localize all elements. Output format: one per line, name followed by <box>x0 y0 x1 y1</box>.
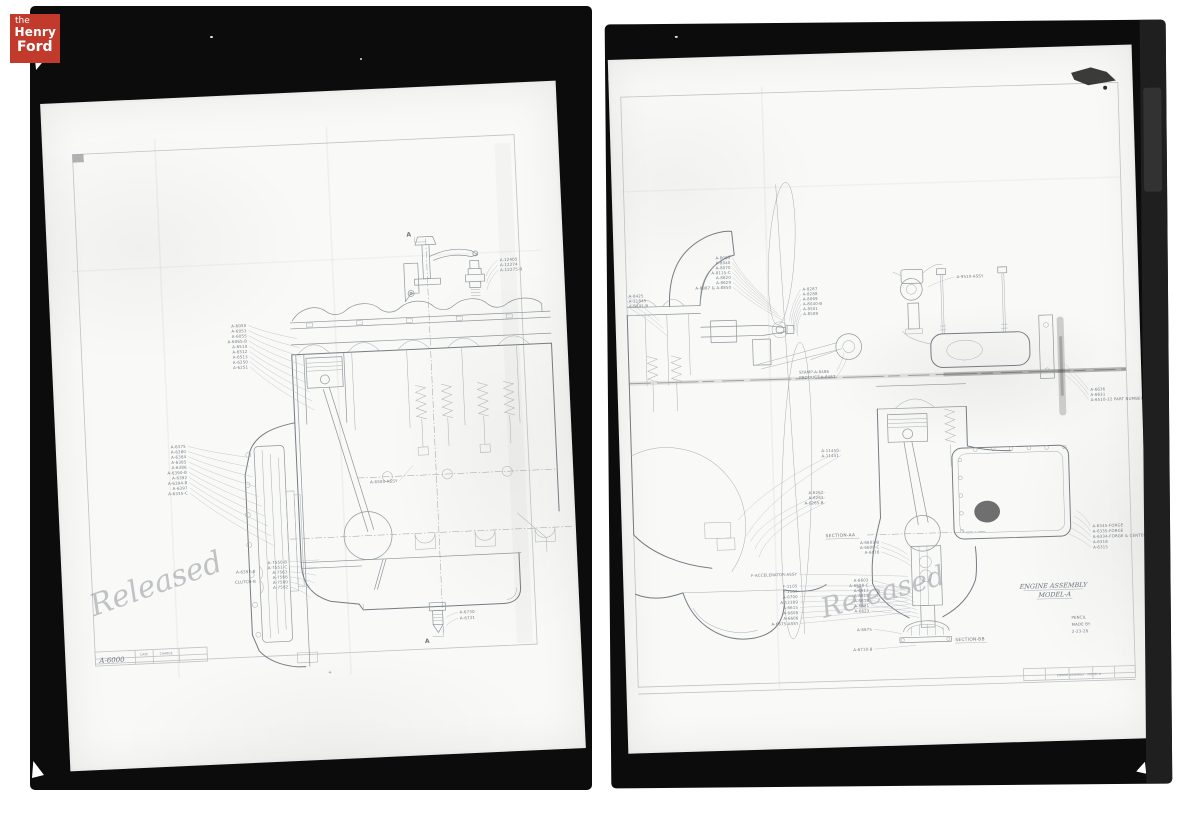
leader-line <box>1074 515 1090 531</box>
leader-line <box>1076 510 1090 527</box>
leader-line <box>189 474 265 520</box>
label-cluster: A-6397-BCLUTCH-B <box>234 569 256 585</box>
part-label: A-6710-B <box>853 647 873 653</box>
section-marker-bottom: A <box>425 638 430 645</box>
part-label: A-6335-C <box>168 491 188 497</box>
part-label: A-6251 <box>233 364 249 370</box>
title-strip-text: ENGINE ASSEMBLY - MODEL A <box>1057 672 1101 677</box>
leader-line <box>882 551 912 567</box>
leader-line <box>757 503 827 557</box>
label-cluster: A-6603-BA-6608-CA-6616 <box>860 539 912 568</box>
leader-line <box>733 276 778 314</box>
leader-line <box>1073 521 1091 537</box>
leader-line <box>446 618 458 626</box>
film-edge-glint <box>1143 88 1162 192</box>
leader-line <box>874 645 916 649</box>
leader-line <box>188 444 247 460</box>
label-cluster: A-6345-FORGEA-6335-FORGEA-6334-FORGE & C… <box>1068 508 1147 550</box>
section-marker-top: A <box>406 231 411 238</box>
leader-line <box>789 289 802 320</box>
label-cluster: A-8425A-21845A-8441-B <box>627 293 668 338</box>
logo-text-ford: Ford <box>17 39 53 55</box>
leader-line <box>736 450 843 520</box>
title-block-line: PENCIL <box>1071 614 1087 619</box>
leader-line <box>486 260 499 276</box>
part-label: A-6675-ASSY <box>771 621 799 627</box>
leader-line <box>446 612 458 618</box>
label-cluster: A-6636A-6631A-6510-22 PART NUMBER <box>1060 358 1144 403</box>
part-label: A-6675 <box>857 627 872 632</box>
leader-line <box>871 609 919 619</box>
part-label: A-8887 & A-8850 <box>695 285 731 291</box>
leader-line <box>928 277 955 287</box>
part-label: A-9510-ASSY <box>956 273 984 279</box>
leader-line <box>188 449 249 470</box>
title-block-cell: CHANGE <box>160 651 173 656</box>
title-block-line: 2-23-28 <box>1072 628 1089 633</box>
title-block-line: MADE BY <box>1072 621 1091 627</box>
leader-line <box>627 305 667 337</box>
label-cluster: A-6262A-6263A-6265-B <box>749 490 827 558</box>
part-label: A-8508 <box>803 311 818 316</box>
film-negative-left: A-6000 DATE CHANGE <box>30 6 592 790</box>
film-edge-strip <box>1140 20 1173 784</box>
leader-line <box>290 581 312 592</box>
engine-drawing-left: A-6000 DATE CHANGE <box>40 81 586 772</box>
leader-line <box>836 353 844 372</box>
label-cluster: A-7550-BA-7551-CA-7563A-7566A-7580A-7502 <box>267 558 320 600</box>
drawing-title: ENGINE ASSEMBLY MODEL-A <box>1018 581 1089 600</box>
dust-speck <box>675 36 678 38</box>
page-root: { "page": {"background": "#ffffff"}, "co… <box>0 0 1200 817</box>
part-label: A-8441-B <box>629 303 649 309</box>
label-cluster: A-8005A-8040A-8070A-8115-CA-8620A-8629A-… <box>694 254 783 324</box>
logo-text-henry: Henry <box>15 25 56 39</box>
henry-ford-logo: the Henry Ford <box>10 14 60 63</box>
leader-line <box>881 546 909 561</box>
part-label: F-ACCELERATOR-ASSY <box>751 572 798 578</box>
drawing-sheet-right: ENGINE ASSEMBLY - MODEL A PENCIL MADE BY… <box>608 44 1152 753</box>
label-cluster: A-6730A-6731 <box>445 609 475 626</box>
film-negative-right: ENGINE ASSEMBLY - MODEL A PENCIL MADE BY… <box>605 20 1173 789</box>
leader-line <box>486 270 499 290</box>
leader-line <box>290 586 311 599</box>
drawing-title-line2: MODEL-A <box>1037 590 1072 599</box>
leader-line <box>189 469 262 510</box>
leader-line <box>289 560 319 562</box>
handwriting-note: Released <box>84 545 227 625</box>
leader-line <box>874 629 902 635</box>
label-cluster: A-6050A-6051A-6055A-6065-BA-6510A-6512A-… <box>227 320 315 414</box>
part-label: A-6623 <box>854 608 869 613</box>
engine-drawing-right: ENGINE ASSEMBLY - MODEL A PENCIL MADE BY… <box>608 44 1152 753</box>
part-label: A-6731 <box>460 615 476 621</box>
film-corner-notch <box>1136 762 1146 774</box>
leader-line <box>188 454 252 480</box>
leader-line <box>733 266 772 306</box>
part-label: A-6334-FORGE & CENTER <box>1093 532 1147 539</box>
part-label: A-6730 <box>459 609 475 615</box>
leader-line <box>790 294 801 324</box>
part-label: A-7502 <box>273 584 289 590</box>
leader-line <box>250 359 312 404</box>
part-label: A-12275-B <box>500 266 523 272</box>
part-label: A-6397-B <box>236 569 256 575</box>
section-aa-label: SECTION-AA <box>826 532 856 539</box>
leader-line <box>399 466 414 481</box>
label-cluster: A-6675A-6710-B <box>853 625 916 652</box>
leader-line <box>248 323 297 341</box>
part-label: A-6500-ASSY <box>370 478 398 484</box>
leader-line <box>190 484 272 539</box>
drawing-title-line1: ENGINE ASSEMBLY <box>1018 581 1088 591</box>
leader-line <box>733 281 781 318</box>
part-label: A-6315 <box>1093 544 1108 549</box>
drawing-number: A-6000 <box>98 656 125 665</box>
dust-speck <box>210 36 213 38</box>
label-cluster: A-6500-ASSY <box>369 466 413 485</box>
part-label: A-11451 <box>821 453 839 459</box>
leader-line <box>1071 527 1091 542</box>
part-label: A-6510-22 PART NUMBER <box>1091 396 1144 403</box>
part-label: A-6616 <box>865 549 880 554</box>
leader-line <box>249 328 300 349</box>
leader-line <box>190 489 274 549</box>
part-label: CLUTCH-B <box>235 579 256 585</box>
dust-speck <box>360 58 362 60</box>
drawing-sheet-left: A-6000 DATE CHANGE <box>40 81 586 772</box>
title-block-cell: DATE <box>140 652 148 656</box>
leader-line <box>1069 533 1091 548</box>
film-corner-notch <box>32 761 45 778</box>
section-bb-label: SECTION-BB <box>955 636 985 643</box>
leader-line <box>486 265 499 283</box>
plus-mark: + <box>328 669 332 675</box>
leader-line <box>249 339 303 368</box>
leader-line <box>732 262 768 303</box>
label-cluster: A-9510-ASSY <box>928 273 985 287</box>
leader-line <box>1064 373 1089 400</box>
